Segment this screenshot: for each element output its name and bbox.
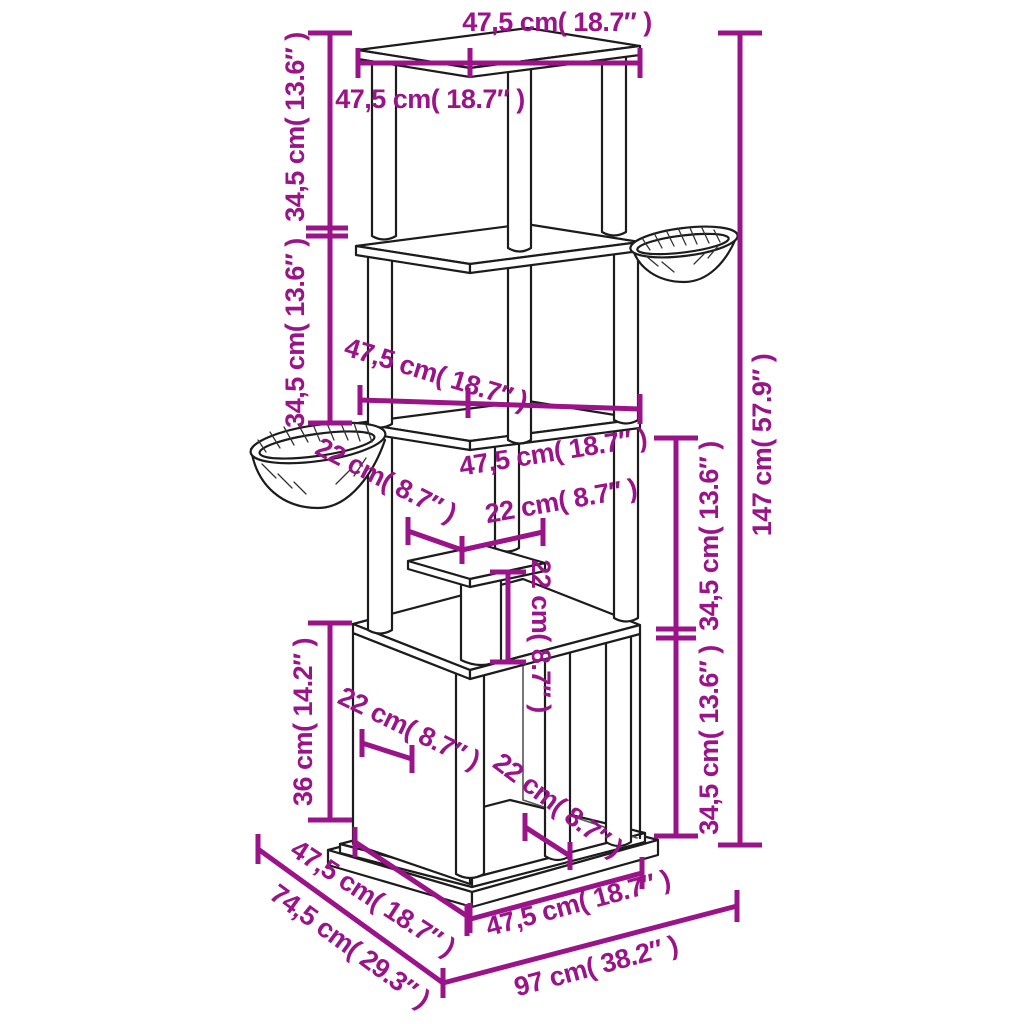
dim-line-right-heights [654, 438, 698, 836]
label-right-upper-height: 34,5 cm( 13.6″ ) [694, 441, 724, 631]
platform-2 [356, 224, 640, 273]
label-right-lower-height: 34,5 cm( 13.6″ ) [694, 645, 724, 835]
post-middle-mid [508, 264, 531, 444]
label-left-upper-height: 34,5 cm( 13.6″ ) [280, 32, 310, 222]
diagram-canvas: 47,5 cm( 18.7″ ) 47,5 cm( 18.7″ ) 34,5 c… [0, 0, 1024, 1024]
post-right-upper [602, 50, 626, 236]
box-post-front [456, 672, 484, 878]
cat-tree-dimension-diagram: 47,5 cm( 18.7″ ) 47,5 cm( 18.7″ ) 34,5 c… [0, 0, 1024, 1024]
label-top-front-width: 47,5 cm( 18.7″ ) [335, 84, 525, 114]
label-left-mid-height: 34,5 cm( 13.6″ ) [280, 238, 310, 428]
post-right-lower [614, 428, 638, 622]
right-bowl [629, 222, 740, 282]
label-step-height: 22 cm( 8.7″ ) [526, 559, 556, 713]
label-total-height: 147 cm( 57.9″ ) [747, 354, 777, 537]
post-right-mid [614, 250, 638, 424]
box-post-right [606, 628, 631, 846]
label-top-back-width: 47,5 cm( 18.7″ ) [462, 7, 652, 37]
label-lower-left-height: 36 cm( 14.2″ ) [288, 638, 318, 806]
step-post [461, 580, 501, 665]
